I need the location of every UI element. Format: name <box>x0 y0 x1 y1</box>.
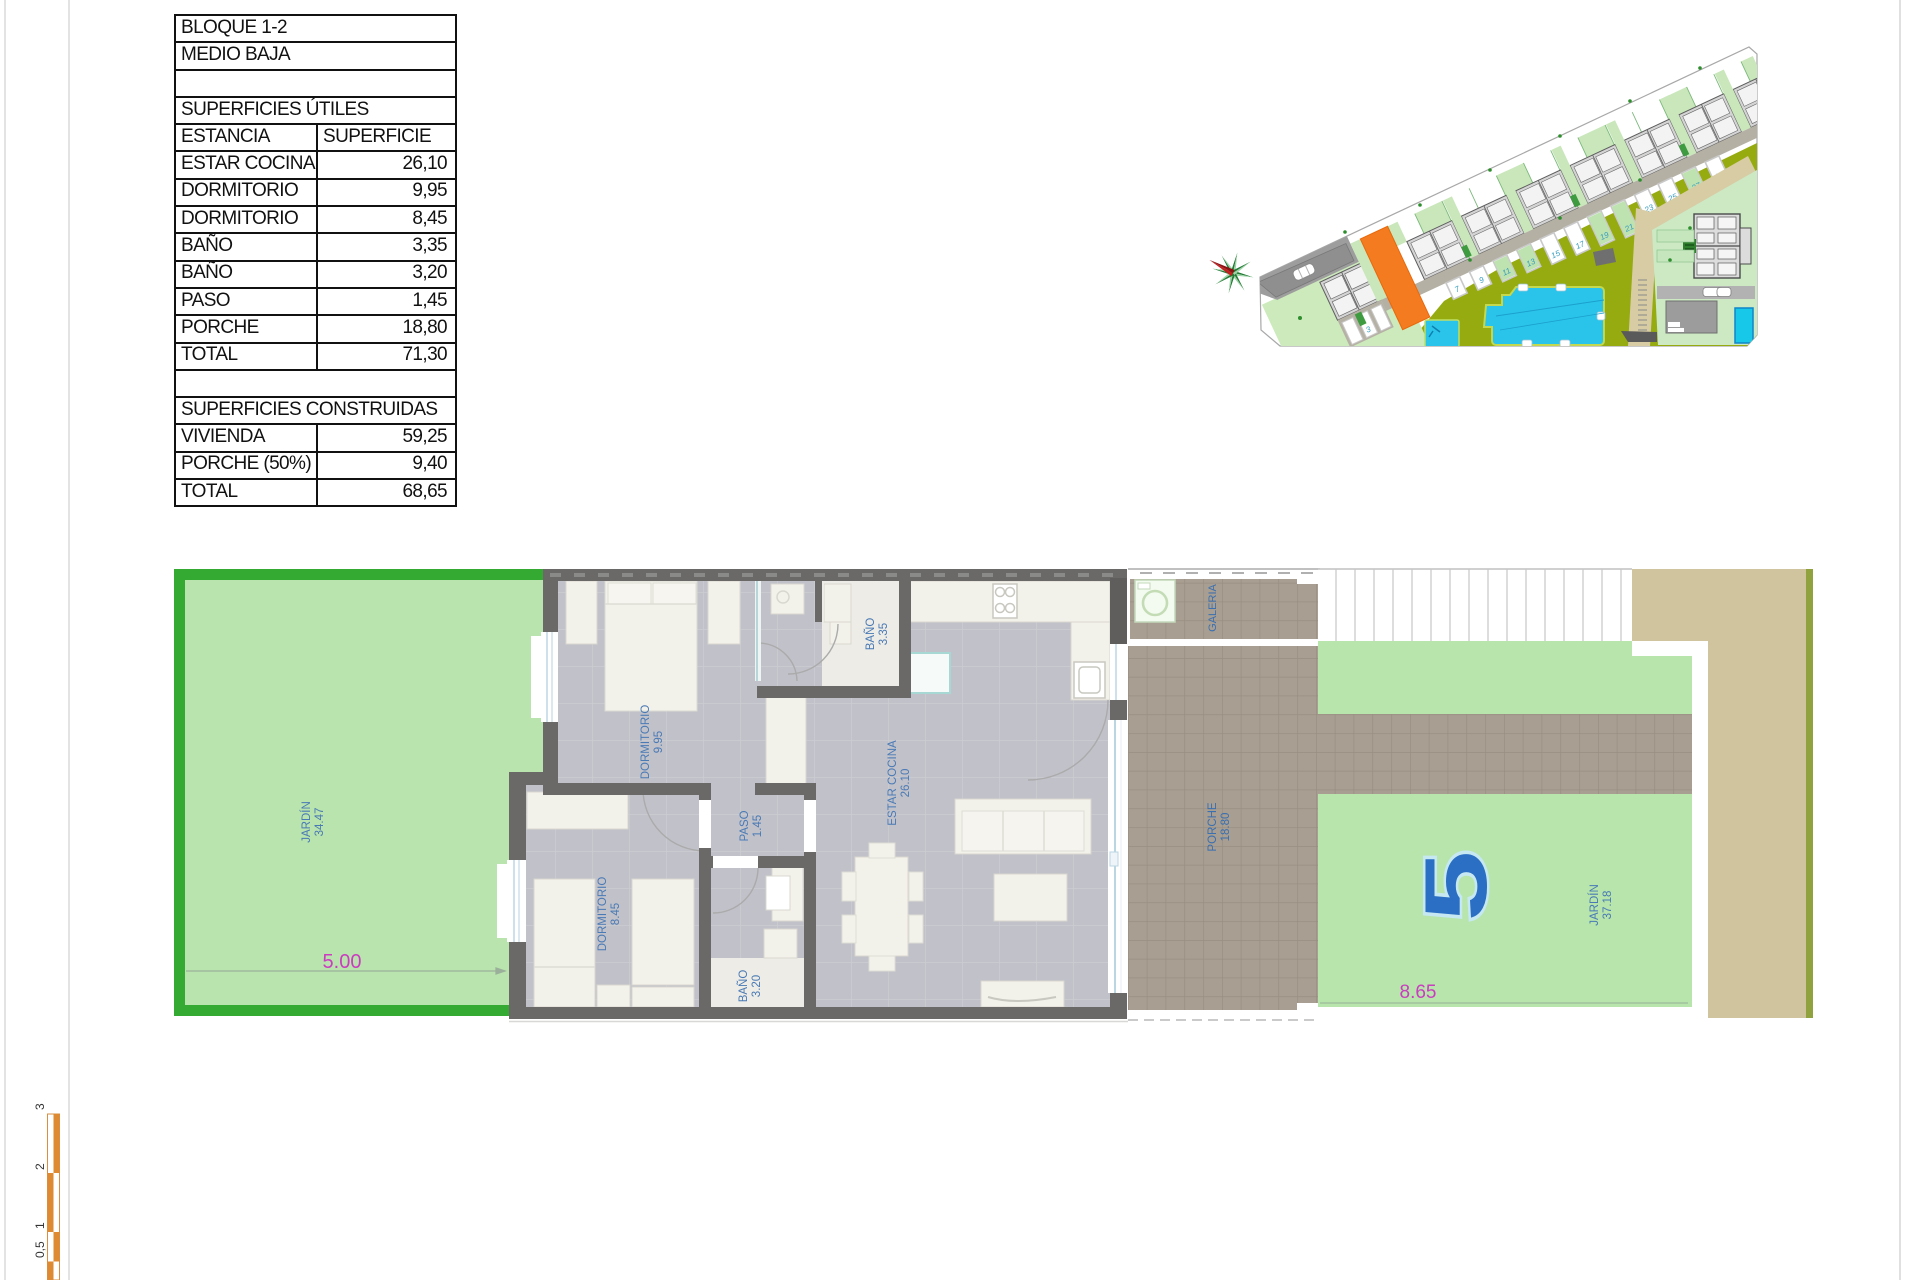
svg-text:ESTAR COCINA: ESTAR COCINA <box>887 740 899 826</box>
svg-text:JARDÍN: JARDÍN <box>300 801 313 843</box>
svg-text:5: 5 <box>1407 851 1505 922</box>
svg-text:0,5: 0,5 <box>33 1241 47 1258</box>
svg-text:3: 3 <box>33 1103 47 1110</box>
svg-text:2: 2 <box>33 1163 47 1170</box>
svg-text:DORMITORIO: DORMITORIO <box>640 705 652 780</box>
svg-text:DORMITORIO: DORMITORIO <box>597 877 609 952</box>
svg-text:PASO: PASO <box>739 810 751 841</box>
svg-text:BAÑO: BAÑO <box>737 970 750 1003</box>
svg-text:1.45: 1.45 <box>752 815 764 837</box>
svg-text:3.20: 3.20 <box>751 975 763 997</box>
svg-text:9.95: 9.95 <box>653 731 665 753</box>
svg-text:18.80: 18.80 <box>1220 813 1232 842</box>
svg-text:1: 1 <box>33 1222 47 1229</box>
svg-text:34.47: 34.47 <box>314 808 326 837</box>
svg-text:37.18: 37.18 <box>1602 891 1614 920</box>
svg-text:JARDÍN: JARDÍN <box>1588 884 1601 926</box>
svg-text:PORCHE: PORCHE <box>1207 802 1219 852</box>
svg-text:GALERIA: GALERIA <box>1207 583 1219 631</box>
svg-text:8.65: 8.65 <box>1400 982 1437 1003</box>
svg-text:5.00: 5.00 <box>323 951 362 973</box>
svg-text:BAÑO: BAÑO <box>864 618 877 651</box>
svg-text:8.45: 8.45 <box>610 903 622 925</box>
svg-text:26.10: 26.10 <box>900 769 912 798</box>
svg-text:3.35: 3.35 <box>878 623 890 645</box>
